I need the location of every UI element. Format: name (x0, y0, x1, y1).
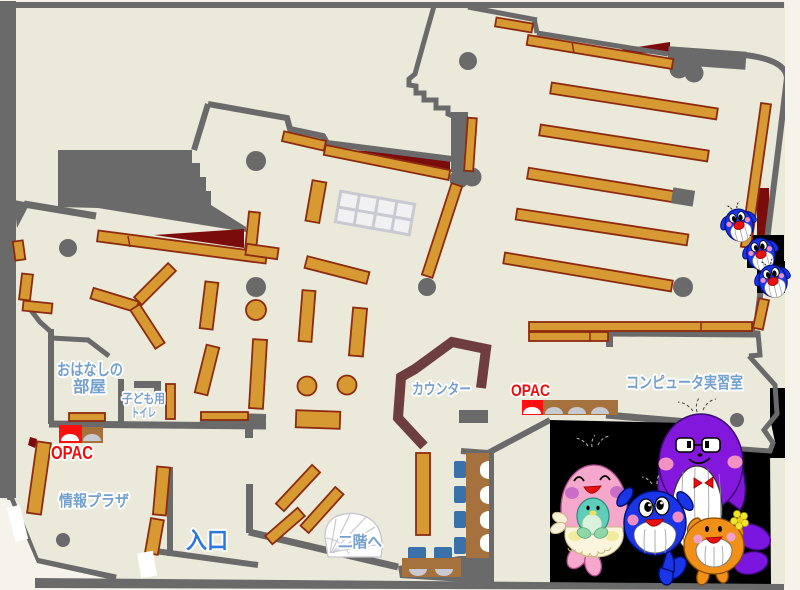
svg-text:二階へ: 二階へ (338, 533, 382, 551)
svg-text:コンピュータ実習室: コンピュータ実習室 (626, 373, 743, 392)
svg-text:トイレ: トイレ (131, 406, 156, 420)
svg-text:情報プラザ: 情報プラザ (59, 491, 129, 510)
svg-text:おはなしの: おはなしの (57, 361, 123, 379)
svg-text:OPAC: OPAC (511, 381, 550, 400)
svg-text:子ども用: 子ども用 (122, 392, 165, 406)
svg-text:入口: 入口 (186, 527, 228, 553)
svg-text:部屋: 部屋 (73, 377, 106, 396)
svg-text:OPAC: OPAC (51, 443, 93, 463)
svg-text:カウンター: カウンター (412, 381, 471, 398)
